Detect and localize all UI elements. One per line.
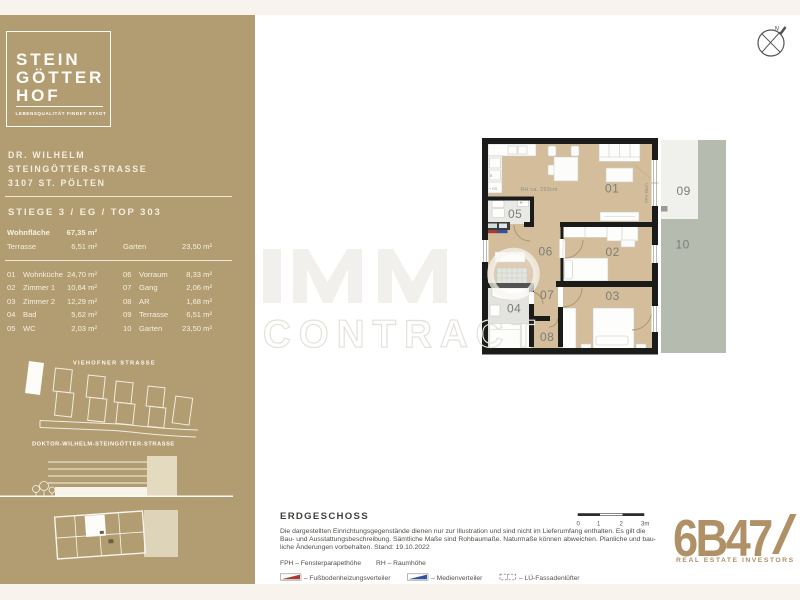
svg-text:05: 05 — [508, 207, 522, 221]
svg-text:VIEHOFNER STRASSE: VIEHOFNER STRASSE — [73, 361, 156, 367]
svg-text:+ GS: + GS — [489, 187, 498, 191]
svg-text:09: 09 — [677, 184, 691, 198]
svg-text:02: 02 — [606, 245, 620, 259]
svg-text:01: 01 — [605, 182, 619, 196]
svg-text:10: 10 — [676, 238, 690, 252]
svg-text:2: 2 — [620, 522, 624, 528]
svg-text:DOKTOR-WILHELM-STEINGÖTTER-STR: DOKTOR-WILHELM-STEINGÖTTER-STRASSE — [32, 441, 175, 448]
svg-text:03: 03 — [606, 289, 620, 303]
svg-text:1: 1 — [597, 522, 601, 528]
svg-text:N: N — [775, 27, 780, 33]
svg-text:FPH 90cm: FPH 90cm — [644, 183, 649, 203]
svg-text:0: 0 — [577, 522, 581, 528]
svg-text:RH ca. 293cm: RH ca. 293cm — [521, 187, 558, 193]
svg-text:3m: 3m — [641, 522, 649, 528]
